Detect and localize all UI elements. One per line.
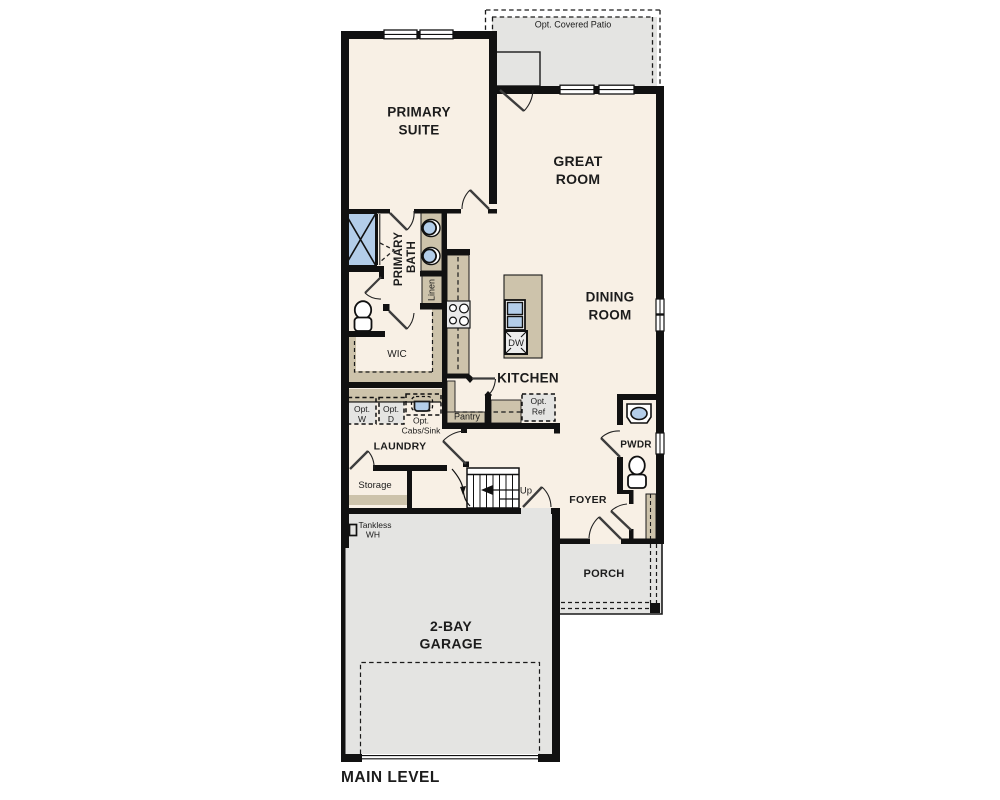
svg-text:Tankless: Tankless: [358, 520, 391, 530]
svg-text:Linen: Linen: [427, 279, 437, 301]
svg-text:Opt.: Opt.: [530, 396, 546, 406]
svg-text:Pantry: Pantry: [454, 412, 481, 422]
svg-text:GREAT: GREAT: [553, 153, 602, 169]
svg-text:Opt.: Opt.: [383, 404, 399, 414]
svg-text:2-BAY: 2-BAY: [430, 618, 472, 634]
svg-text:ROOM: ROOM: [556, 171, 601, 187]
svg-text:Opt. Covered Patio: Opt. Covered Patio: [535, 20, 612, 30]
svg-text:PRIMARY: PRIMARY: [393, 232, 405, 286]
svg-text:Cabs/Sink: Cabs/Sink: [402, 426, 441, 436]
svg-text:D: D: [388, 414, 394, 424]
svg-text:DINING: DINING: [586, 290, 635, 305]
svg-text:BATH: BATH: [406, 241, 418, 273]
svg-text:PORCH: PORCH: [584, 568, 625, 580]
svg-text:DW: DW: [508, 338, 524, 349]
svg-text:PRIMARY: PRIMARY: [387, 105, 451, 120]
svg-text:GARAGE: GARAGE: [420, 636, 483, 652]
svg-text:Opt.: Opt.: [413, 416, 429, 426]
svg-text:LAUNDRY: LAUNDRY: [374, 441, 427, 453]
svg-text:Storage: Storage: [358, 480, 391, 491]
svg-text:WIC: WIC: [387, 349, 406, 360]
svg-text:FOYER: FOYER: [569, 494, 607, 506]
svg-text:Ref: Ref: [532, 407, 546, 417]
svg-text:Up: Up: [520, 486, 532, 497]
svg-text:WH: WH: [366, 530, 380, 540]
svg-text:KITCHEN: KITCHEN: [497, 371, 559, 386]
svg-text:Opt.: Opt.: [354, 404, 370, 414]
svg-text:W: W: [358, 414, 366, 424]
svg-text:PWDR: PWDR: [620, 440, 652, 451]
svg-text:ROOM: ROOM: [589, 308, 632, 323]
svg-text:SUITE: SUITE: [398, 123, 439, 138]
svg-text:MAIN LEVEL: MAIN LEVEL: [341, 769, 440, 786]
